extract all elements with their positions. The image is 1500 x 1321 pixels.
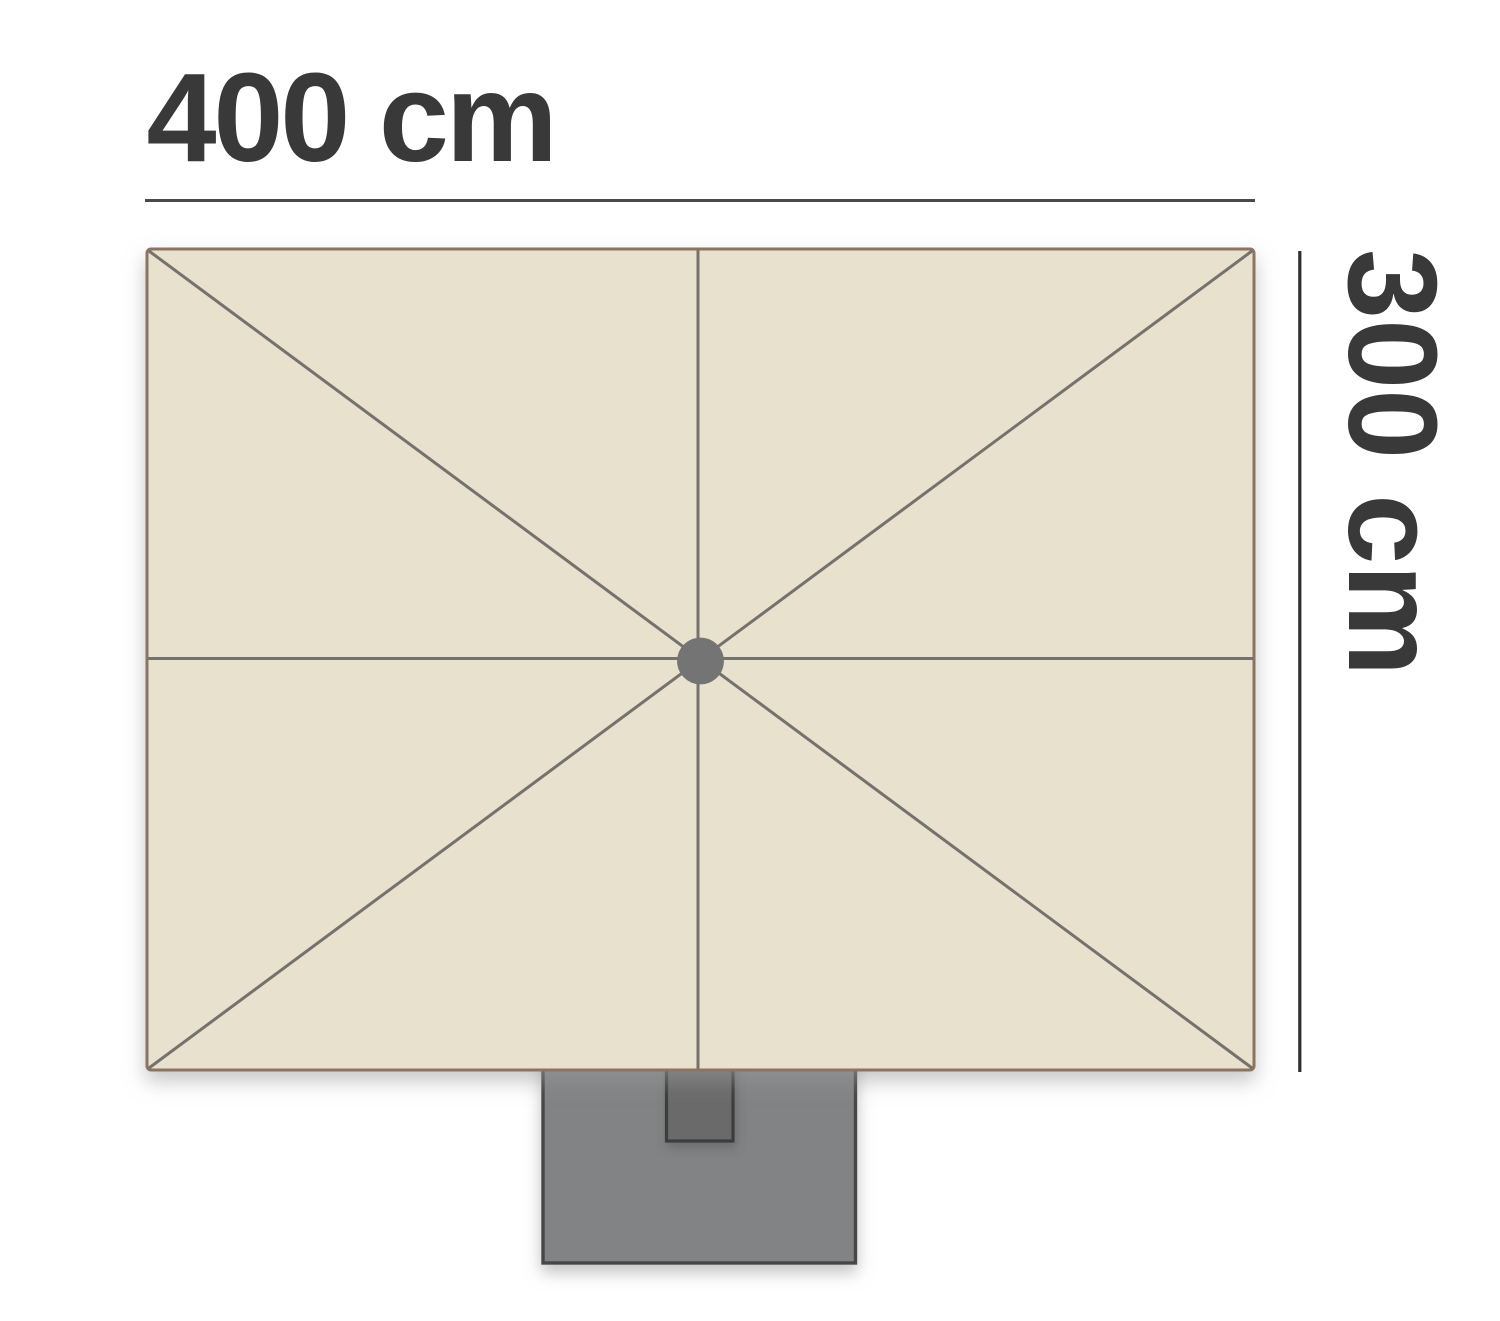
svg-text:300 cm: 300 cm [1322, 249, 1463, 676]
svg-text:400 cm: 400 cm [147, 47, 555, 188]
